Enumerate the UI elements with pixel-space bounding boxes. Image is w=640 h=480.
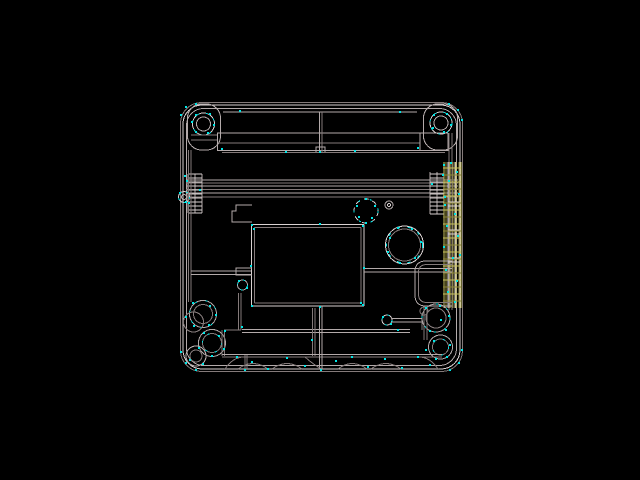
snap-markers	[239, 110, 241, 112]
snap-markers	[218, 335, 220, 337]
snap-markers	[319, 151, 321, 153]
snap-markers	[354, 150, 356, 152]
snap-markers	[449, 369, 451, 371]
snap-markers	[461, 119, 463, 121]
snap-markers	[211, 355, 213, 357]
snap-markers	[443, 246, 445, 248]
bottom-scallop	[371, 364, 401, 370]
screw-hole-top-left	[197, 117, 211, 131]
snap-markers	[448, 180, 450, 182]
snap-markers	[195, 114, 197, 116]
snap-markers	[250, 265, 252, 267]
snap-markers	[365, 198, 367, 200]
hinge-hole-left	[182, 195, 187, 200]
snap-markers	[387, 251, 389, 253]
snap-markers	[389, 237, 391, 239]
snap-markers	[358, 216, 360, 218]
snap-markers	[450, 124, 452, 126]
center-window	[252, 225, 365, 307]
snap-markers	[179, 192, 181, 194]
snap-markers	[253, 228, 255, 230]
snap-markers	[458, 193, 460, 195]
snap-markers	[450, 162, 452, 164]
snap-markers	[417, 147, 419, 149]
snap-markers	[445, 269, 447, 271]
snap-markers	[454, 301, 456, 303]
snap-markers	[384, 358, 386, 360]
snap-markers	[371, 217, 373, 219]
snap-markers	[417, 356, 419, 358]
snap-markers	[445, 329, 447, 331]
snap-markers	[433, 114, 435, 116]
pin-hole	[385, 201, 393, 209]
snap-markers	[433, 340, 435, 342]
snap-markers	[448, 315, 450, 317]
boss-cluster-bottom-left	[190, 350, 202, 362]
snap-markers	[195, 103, 197, 105]
snap-markers	[320, 369, 322, 371]
snap-markers	[429, 330, 431, 332]
snap-markers	[443, 164, 445, 166]
pin-hole	[388, 204, 391, 207]
snap-markers	[367, 366, 369, 368]
snap-markers	[447, 291, 449, 293]
snap-markers	[251, 305, 253, 307]
snap-markers	[198, 347, 200, 349]
snap-markers	[362, 304, 364, 306]
snap-markers	[432, 127, 434, 129]
snap-markers	[209, 113, 211, 115]
snap-markers	[186, 180, 188, 182]
cad-drawing-area	[0, 0, 640, 480]
snap-markers	[399, 111, 401, 113]
snap-markers	[246, 287, 248, 289]
snap-markers	[251, 361, 253, 363]
snap-markers	[456, 171, 458, 173]
snap-markers	[457, 235, 459, 237]
snap-markers	[444, 196, 446, 198]
snap-markers	[223, 348, 225, 350]
snap-markers	[199, 189, 201, 191]
snap-markers	[414, 257, 416, 259]
snap-markers	[185, 362, 187, 364]
bottom-scallop	[238, 364, 268, 370]
snap-markers	[397, 329, 399, 331]
boss-cluster-bottom-right	[426, 308, 446, 328]
snap-markers	[356, 205, 358, 207]
snap-markers	[456, 280, 458, 282]
snap-markers	[449, 344, 451, 346]
snap-markers	[397, 227, 399, 229]
snap-markers	[363, 267, 365, 269]
bottom-scallop	[272, 364, 302, 370]
snap-markers	[215, 314, 217, 316]
snap-markers	[238, 280, 240, 282]
snap-markers	[241, 326, 243, 328]
snap-markers	[365, 222, 367, 224]
snap-markers	[439, 305, 441, 307]
snap-markers	[360, 302, 362, 304]
snap-markers	[209, 305, 211, 307]
snap-markers	[207, 132, 209, 134]
snap-markers	[221, 148, 223, 150]
snap-markers	[440, 319, 442, 321]
snap-markers	[399, 262, 401, 264]
snap-markers	[188, 202, 190, 204]
snap-markers	[446, 113, 448, 115]
snap-markers	[411, 228, 413, 230]
snap-markers	[208, 324, 210, 326]
snap-markers	[180, 351, 182, 353]
snap-markers	[185, 106, 187, 108]
snap-markers	[203, 332, 205, 334]
snap-markers	[195, 131, 197, 133]
snap-markers	[452, 257, 454, 259]
snap-markers	[285, 151, 287, 153]
snap-markers	[420, 241, 422, 243]
vent-circle	[354, 199, 378, 223]
snap-markers	[454, 213, 456, 215]
snap-markers	[457, 109, 459, 111]
snap-markers	[244, 369, 246, 371]
step-bracket-upper	[232, 205, 252, 222]
snap-markers	[319, 223, 321, 225]
snap-markers	[448, 103, 450, 105]
snap-markers	[319, 306, 321, 308]
snap-markers	[446, 225, 448, 227]
snap-markers	[185, 316, 187, 318]
screw-hole-top-right	[434, 116, 448, 130]
snap-markers	[311, 339, 313, 341]
snap-markers	[189, 359, 191, 361]
snap-markers	[443, 131, 445, 133]
snap-markers	[213, 124, 215, 126]
snap-markers	[435, 358, 437, 360]
snap-markers	[459, 254, 461, 256]
snap-markers	[192, 302, 194, 304]
snap-markers	[195, 369, 197, 371]
snap-markers	[251, 224, 253, 226]
snap-markers	[401, 367, 403, 369]
snap-markers	[461, 349, 463, 351]
snap-markers	[425, 349, 427, 351]
snap-markers	[180, 114, 182, 116]
snap-markers	[286, 357, 288, 359]
snap-markers	[224, 330, 226, 332]
snap-markers	[382, 316, 384, 318]
snap-markers	[429, 364, 431, 366]
snap-markers	[202, 363, 204, 365]
snap-markers	[193, 325, 195, 327]
snap-markers	[442, 174, 444, 176]
cable-boss	[389, 229, 421, 261]
cable-boss	[387, 227, 423, 263]
bottom-scallop	[338, 364, 367, 370]
center-window	[255, 228, 362, 304]
snap-markers	[304, 365, 306, 367]
snap-markers	[351, 356, 353, 358]
snap-markers	[444, 204, 446, 206]
cable-boss	[386, 226, 424, 264]
snap-markers	[335, 360, 337, 362]
snap-markers	[267, 368, 269, 370]
snap-markers	[185, 201, 187, 203]
snap-markers	[431, 183, 433, 185]
snap-markers	[374, 205, 376, 207]
snap-markers	[184, 175, 186, 177]
snap-markers	[236, 356, 238, 358]
snap-markers	[362, 225, 364, 227]
snap-markers	[390, 323, 392, 325]
snap-markers	[446, 356, 448, 358]
snap-markers	[425, 307, 427, 309]
cad-viewport[interactable]	[0, 0, 640, 480]
snap-markers	[458, 362, 460, 364]
snap-markers	[191, 121, 193, 123]
